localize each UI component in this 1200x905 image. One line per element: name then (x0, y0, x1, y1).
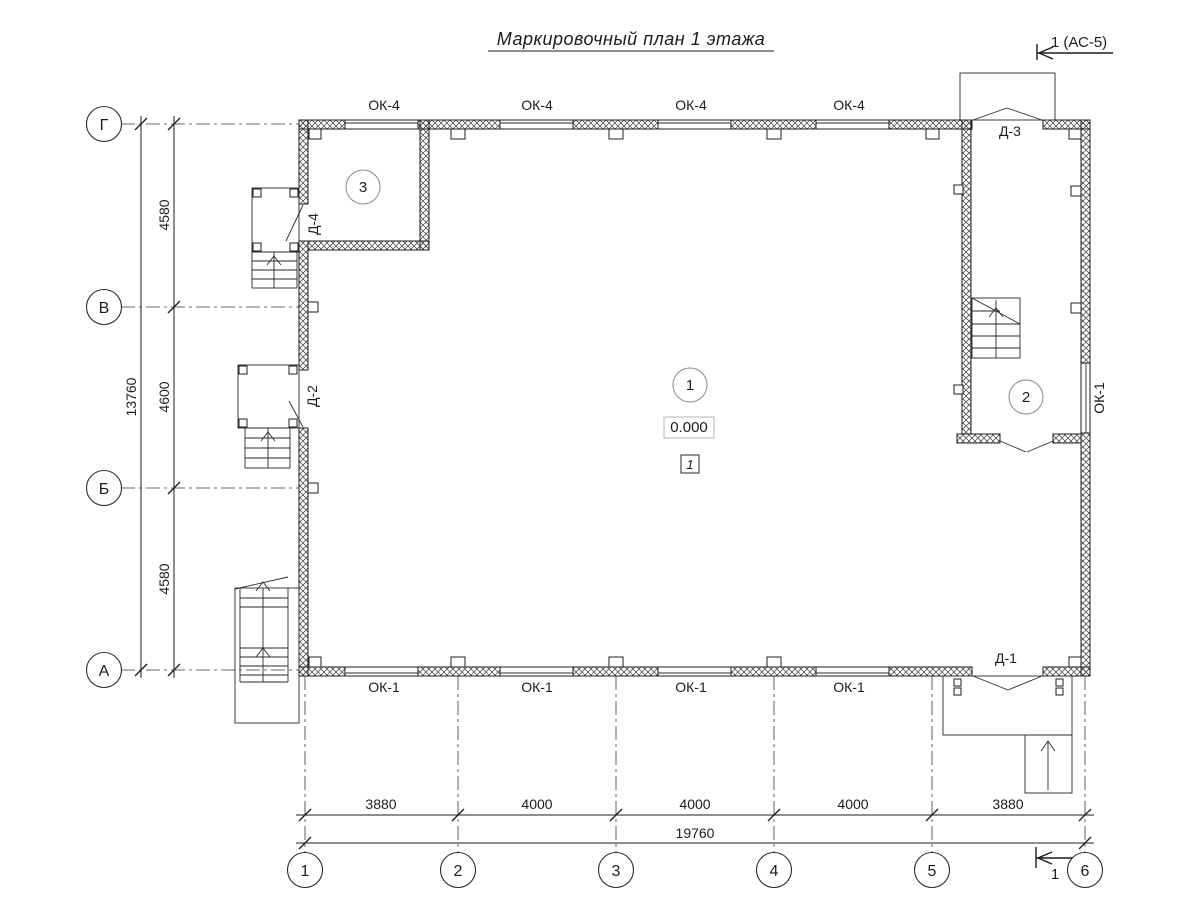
axis-letter: Б (99, 481, 110, 498)
axis-number: 3 (612, 863, 621, 880)
dim-bottom-2: 4000 (521, 796, 552, 812)
dim-bottom-total: 19760 (676, 825, 715, 841)
window-label-bottom: ОК-1 (368, 679, 400, 695)
door-label-d1: Д-1 (995, 650, 1017, 666)
room-tag-3: 3 (359, 179, 367, 196)
axis-letter: Г (100, 117, 109, 134)
section-label-bottom: 1 (1051, 866, 1059, 883)
door-label-d2: Д-2 (304, 385, 320, 407)
door-label-d4: Д-4 (305, 213, 321, 235)
floor-plan-drawing: Маркировочный план 1 этажа 1 (АС-5) 1 (0, 0, 1200, 900)
dim-bottom-5: 3880 (992, 796, 1023, 812)
axis-number: 1 (301, 863, 310, 880)
window-label-top: ОК-4 (675, 97, 707, 113)
axis-number: 6 (1081, 863, 1090, 880)
window-label-bottom: ОК-1 (833, 679, 865, 695)
window-label-bottom: ОК-1 (521, 679, 553, 695)
window-label-top: ОК-4 (368, 97, 400, 113)
page-title: Маркировочный план 1 этажа (497, 29, 765, 49)
door-label-d3: Д-3 (999, 123, 1021, 139)
window-label-bottom: ОК-1 (675, 679, 707, 695)
room-tag-1: 1 (686, 377, 694, 394)
dim-left-3: 4580 (156, 563, 172, 594)
axis-letter: В (99, 300, 110, 317)
dim-left-2: 4600 (156, 381, 172, 412)
axis-number: 5 (928, 863, 937, 880)
title-block: Маркировочный план 1 этажа (488, 29, 774, 51)
axis-number: 4 (770, 863, 779, 880)
note-box: 1 (686, 457, 693, 472)
elevation-mark: 0.000 (670, 419, 708, 436)
window-label-right: ОК-1 (1091, 382, 1107, 414)
window-label-top: ОК-4 (833, 97, 865, 113)
axis-number: 2 (454, 863, 463, 880)
drawing-sheet: Маркировочный план 1 этажа 1 (АС-5) 1 (0, 0, 1200, 900)
dim-left-1: 4580 (156, 199, 172, 230)
window-label-top: ОК-4 (521, 97, 553, 113)
section-label-top: 1 (АС-5) (1051, 34, 1107, 51)
dim-left-total: 13760 (123, 377, 139, 416)
dim-bottom-3: 4000 (679, 796, 710, 812)
axis-letter: А (99, 663, 110, 680)
room-tag-2: 2 (1022, 389, 1030, 406)
dim-bottom-1: 3880 (365, 796, 396, 812)
dim-bottom-4: 4000 (837, 796, 868, 812)
